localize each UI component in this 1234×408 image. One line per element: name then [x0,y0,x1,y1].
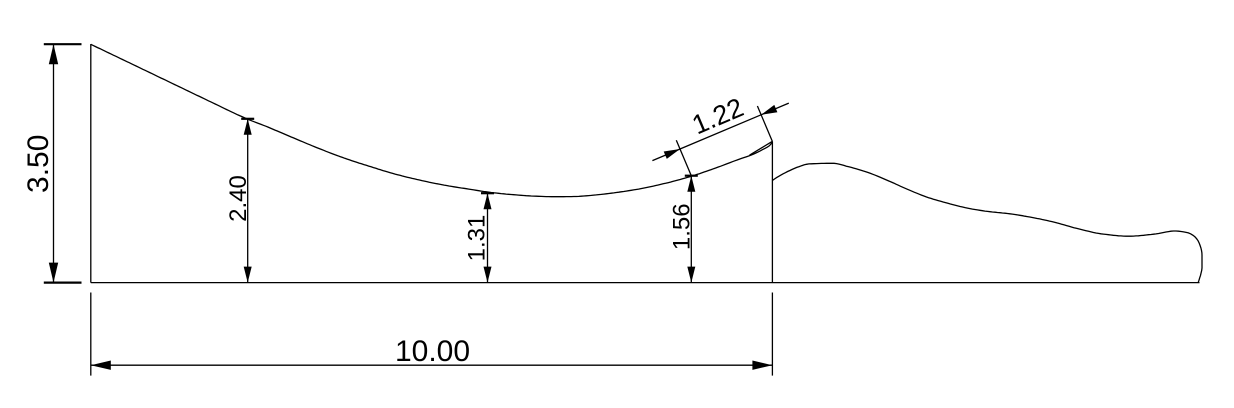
svg-text:10.00: 10.00 [395,335,470,368]
svg-text:1.56: 1.56 [668,203,695,250]
svg-text:2.40: 2.40 [225,175,252,222]
svg-text:1.31: 1.31 [464,215,491,262]
svg-text:3.50: 3.50 [22,135,55,193]
